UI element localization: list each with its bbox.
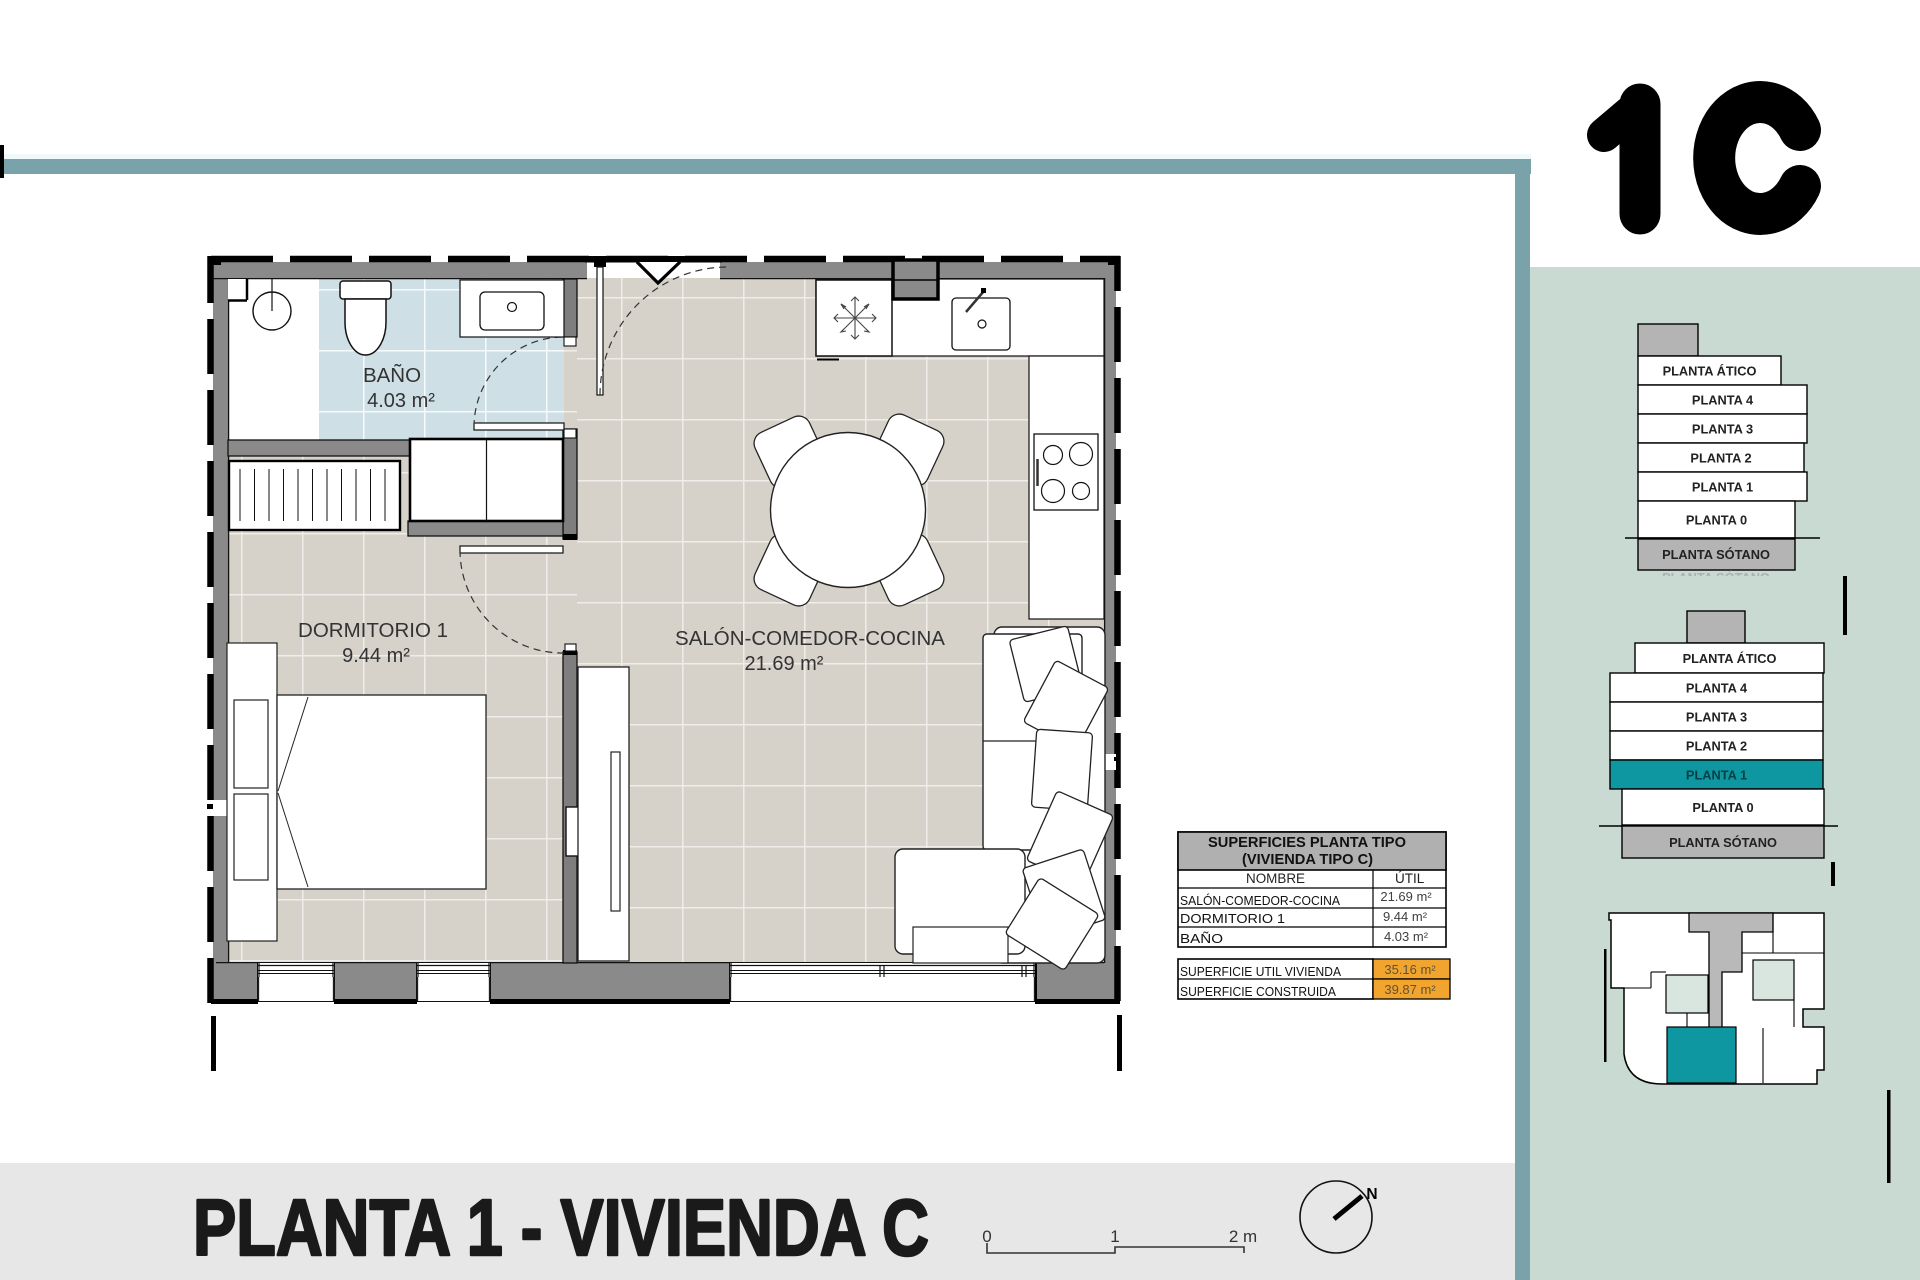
svg-text:PLANTA ÁTICO: PLANTA ÁTICO <box>1683 651 1777 666</box>
svg-text:21.69 m²: 21.69 m² <box>1380 889 1432 904</box>
svg-text:21.69 m²: 21.69 m² <box>745 653 824 675</box>
svg-text:4.03 m²: 4.03 m² <box>367 390 435 412</box>
svg-text:4.03 m²: 4.03 m² <box>1384 929 1429 944</box>
svg-text:SUPERFICIE UTIL VIVIENDA: SUPERFICIE UTIL VIVIENDA <box>1180 964 1341 979</box>
svg-text:PLANTA 2: PLANTA 2 <box>1690 451 1751 466</box>
svg-text:PLANTA 3: PLANTA 3 <box>1686 710 1747 725</box>
svg-text:9.44 m²: 9.44 m² <box>342 645 410 667</box>
svg-text:PLANTA 3: PLANTA 3 <box>1692 422 1753 437</box>
svg-text:9.44 m²: 9.44 m² <box>1383 909 1428 924</box>
svg-text:PLANTA ÁTICO: PLANTA ÁTICO <box>1663 364 1757 379</box>
svg-text:NOMBRE: NOMBRE <box>1246 871 1305 886</box>
svg-text:PLANTA 0: PLANTA 0 <box>1686 513 1747 528</box>
svg-text:2 m: 2 m <box>1229 1227 1257 1246</box>
svg-text:DORMITORIO 1: DORMITORIO 1 <box>1180 911 1285 926</box>
svg-text:(VIVIENDA TIPO C): (VIVIENDA TIPO C) <box>1242 851 1373 868</box>
svg-text:PLANTA 1 - VIVIENDA C: PLANTA 1 - VIVIENDA C <box>193 1183 929 1272</box>
svg-text:PLANTA 4: PLANTA 4 <box>1692 393 1754 408</box>
svg-text:PLANTA 0: PLANTA 0 <box>1692 800 1753 815</box>
svg-text:SUPERFICIE CONSTRUIDA: SUPERFICIE CONSTRUIDA <box>1180 984 1336 999</box>
svg-text:PLANTA 2: PLANTA 2 <box>1686 739 1747 754</box>
svg-text:SUPERFICIES PLANTA TIPO: SUPERFICIES PLANTA TIPO <box>1208 834 1406 851</box>
svg-text:PLANTA 1: PLANTA 1 <box>1692 480 1753 495</box>
svg-text:PLANTA SÓTANO: PLANTA SÓTANO <box>1662 547 1770 562</box>
svg-text:PLANTA SÓTANO: PLANTA SÓTANO <box>1669 835 1777 850</box>
svg-text:ÚTIL: ÚTIL <box>1395 871 1425 886</box>
svg-text:DORMITORIO 1: DORMITORIO 1 <box>298 619 448 642</box>
svg-text:SALÓN-COMEDOR-COCINA: SALÓN-COMEDOR-COCINA <box>675 627 945 650</box>
svg-text:BAÑO: BAÑO <box>1180 931 1223 946</box>
svg-text:PLANTA 4: PLANTA 4 <box>1686 681 1748 696</box>
svg-text:39.87 m²: 39.87 m² <box>1384 982 1436 997</box>
svg-text:35.16 m²: 35.16 m² <box>1384 962 1436 977</box>
svg-text:N: N <box>1366 1186 1377 1203</box>
svg-text:BAÑO: BAÑO <box>363 364 421 387</box>
svg-text:1: 1 <box>1110 1227 1119 1246</box>
svg-text:PLANTA 1: PLANTA 1 <box>1686 768 1747 783</box>
svg-text:SALÓN-COMEDOR-COCINA: SALÓN-COMEDOR-COCINA <box>1180 893 1340 908</box>
